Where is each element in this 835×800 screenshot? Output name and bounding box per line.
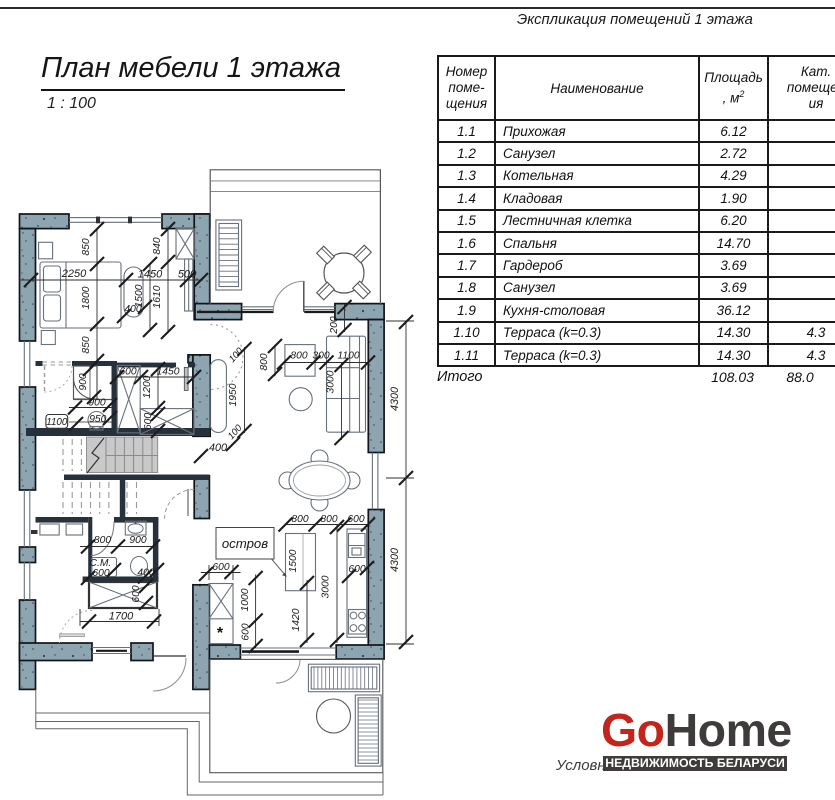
svg-text:840: 840 [152, 237, 163, 254]
svg-text:2250: 2250 [61, 268, 87, 280]
svg-text:1610: 1610 [152, 285, 163, 308]
svg-text:900: 900 [78, 373, 89, 390]
svg-text:1100: 1100 [337, 351, 359, 362]
svg-text:900: 900 [129, 535, 146, 546]
svg-text:800: 800 [291, 514, 308, 525]
svg-text:800: 800 [320, 514, 337, 525]
svg-text:1950: 1950 [228, 383, 239, 406]
svg-text:100: 100 [226, 422, 245, 442]
svg-text:1100: 1100 [46, 417, 68, 428]
svg-text:300: 300 [312, 351, 329, 362]
svg-text:1700: 1700 [109, 611, 134, 623]
svg-text:400: 400 [209, 442, 227, 454]
svg-text:остров: остров [222, 536, 268, 551]
svg-text:600: 600 [131, 585, 142, 602]
svg-text:600: 600 [92, 568, 109, 579]
svg-text:3000: 3000 [321, 575, 332, 598]
svg-text:200: 200 [329, 316, 340, 334]
svg-text:1500: 1500 [288, 549, 299, 572]
svg-text:850: 850 [81, 238, 92, 255]
svg-text:1800: 1800 [81, 286, 92, 309]
svg-text:900: 900 [88, 398, 105, 409]
svg-text:3000: 3000 [326, 370, 337, 393]
svg-text:800: 800 [259, 353, 270, 370]
svg-text:600: 600 [212, 562, 229, 573]
svg-text:850: 850 [81, 336, 92, 353]
svg-text:600: 600 [143, 413, 154, 430]
svg-text:800: 800 [94, 535, 111, 546]
svg-text:600: 600 [347, 514, 364, 525]
svg-text:4300: 4300 [389, 387, 401, 411]
svg-text:500: 500 [178, 269, 197, 281]
svg-text:*: * [217, 625, 224, 642]
svg-text:1200: 1200 [142, 375, 153, 398]
svg-text:800: 800 [290, 351, 307, 362]
svg-text:600: 600 [119, 367, 136, 378]
svg-text:1000: 1000 [240, 588, 251, 611]
svg-text:600: 600 [241, 623, 252, 640]
svg-text:4300: 4300 [389, 548, 401, 572]
svg-text:1420: 1420 [291, 608, 302, 631]
